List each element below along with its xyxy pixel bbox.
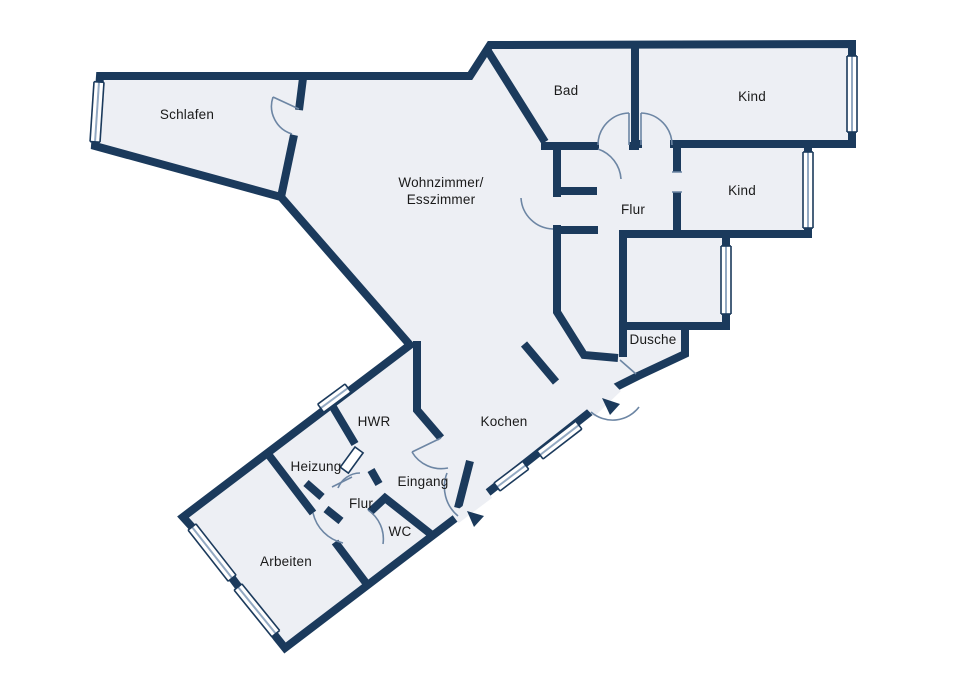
room-label-bad: Bad	[554, 83, 579, 98]
room-label-wc: WC	[389, 524, 412, 539]
room-label-schlafen: Schlafen	[160, 107, 214, 122]
room-label-kind-rechts: Kind	[728, 183, 756, 198]
floor-plan-canvas: Schlafen Wohnzimmer/ Esszimmer Bad Kind …	[0, 0, 960, 679]
floor-plan: Schlafen Wohnzimmer/ Esszimmer Bad Kind …	[0, 0, 960, 679]
room-label-wohnzimmer-line1: Wohnzimmer/	[398, 175, 483, 190]
window-unten-rechts	[721, 246, 731, 314]
room-label-flur-oben: Flur	[621, 202, 645, 217]
room-label-eingang: Eingang	[398, 474, 449, 489]
room-label-flur-unten: Flur	[349, 496, 373, 511]
room-label-arbeiten: Arbeiten	[260, 554, 312, 569]
room-label-hwr: HWR	[358, 414, 391, 429]
window-kind-rechts	[803, 152, 813, 228]
entrance-arrow-main-icon	[467, 511, 484, 527]
room-label-kochen: Kochen	[481, 414, 528, 429]
room-label-dusche: Dusche	[630, 332, 677, 347]
room-label-heizung: Heizung	[291, 459, 342, 474]
window-kind-oben	[847, 56, 857, 132]
room-label-wohnzimmer-line2: Esszimmer	[407, 192, 476, 207]
room-label-kind-oben: Kind	[738, 89, 766, 104]
